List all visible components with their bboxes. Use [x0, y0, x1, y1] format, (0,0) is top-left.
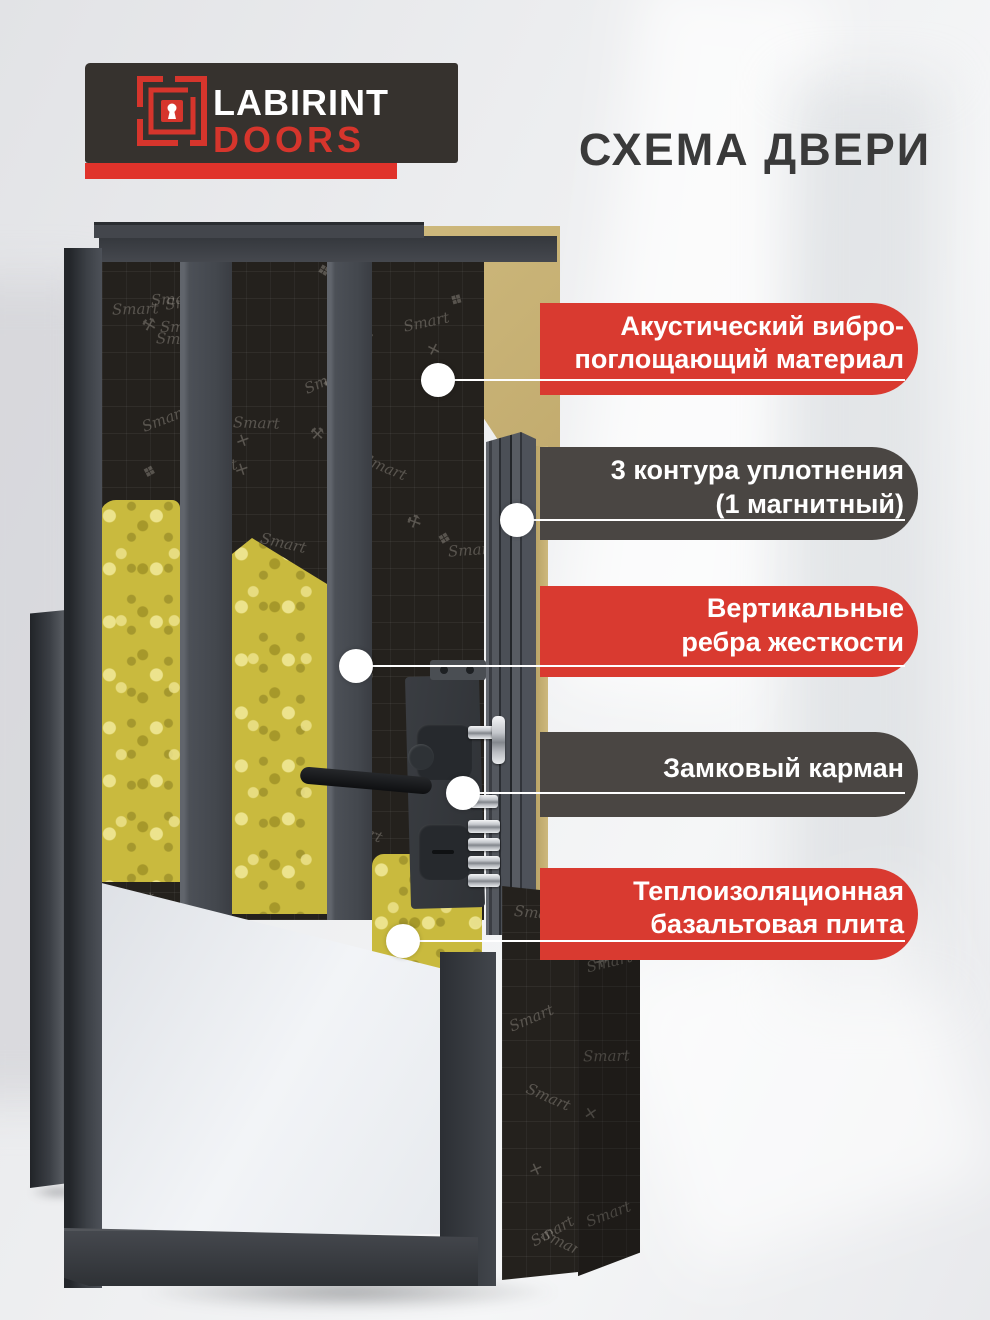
callout-text: 3 контура уплотнения [611, 454, 904, 487]
callout-dot-3 [339, 649, 373, 683]
callout-dot-1 [421, 363, 455, 397]
frame-right-column [440, 952, 496, 1286]
callout-text: (1 магнитный) [716, 488, 904, 521]
callout-dot-4 [446, 776, 480, 810]
door-top-rail-front [94, 222, 424, 238]
page-title: СХЕМА ДВЕРИ [540, 124, 970, 176]
callout-acoustic-material: Акустический вибро- поглощающий материал [540, 303, 918, 395]
logo-line2: DOORS [213, 121, 389, 158]
callout-basalt-plate: Теплоизоляционная базальтовая плита [540, 868, 918, 960]
deadbolt [468, 820, 500, 833]
vertical-rib [327, 258, 372, 920]
callout-seal-contours: 3 контура уплотнения (1 магнитный) [540, 447, 918, 540]
callout-line-5 [403, 940, 905, 942]
callout-line-3 [356, 665, 905, 667]
callout-vertical-ribs: Вертикальные ребра жесткости [540, 586, 918, 677]
background-streak [790, 80, 940, 1000]
lock-knob [408, 744, 434, 770]
callout-text: базальтовая плита [650, 908, 904, 941]
exterior-handle [492, 716, 505, 764]
callout-text: ребра жесткости [681, 626, 904, 659]
deadbolt [468, 838, 500, 851]
mineral-wool-slab [232, 538, 327, 914]
logo-wordmark: LABIRINT DOORS [213, 84, 389, 158]
callout-text: поглощающий материал [575, 343, 904, 376]
callout-text: Замковый карман [663, 752, 904, 785]
callout-text: Вертикальные [707, 592, 904, 625]
deadbolt [468, 874, 500, 887]
deadbolt [468, 856, 500, 869]
bracket-hole [466, 666, 474, 674]
lock-body-upper [416, 724, 472, 780]
key-slot [432, 850, 454, 854]
vertical-rib [180, 258, 232, 920]
frame-bottom-bar [64, 1228, 478, 1286]
frame-left-column [64, 248, 102, 1288]
callout-line-4 [463, 792, 905, 794]
maze-lock-icon [136, 75, 208, 147]
callout-line-2 [517, 519, 905, 521]
callout-text: Акустический вибро- [620, 310, 904, 343]
door-top-rail-back [99, 236, 557, 262]
logo-line1: LABIRINT [213, 84, 389, 121]
mineral-wool-slab [100, 500, 180, 882]
bracket-hole [440, 666, 448, 674]
door-frame-jamb [30, 610, 66, 1188]
infographic-canvas: Smart❖SmartSmart❖❖SmartSmartSmart❖SmartS… [0, 0, 990, 1320]
lock-body-lower [418, 824, 470, 880]
callout-text: Теплоизоляционная [633, 875, 904, 908]
lock-bracket [430, 660, 486, 680]
callout-dot-2 [500, 503, 534, 537]
callout-line-1 [438, 379, 905, 381]
logo-red-stripe [85, 163, 397, 179]
callout-dot-5 [386, 924, 420, 958]
callout-lock-pocket: Замковый карман [540, 732, 918, 817]
